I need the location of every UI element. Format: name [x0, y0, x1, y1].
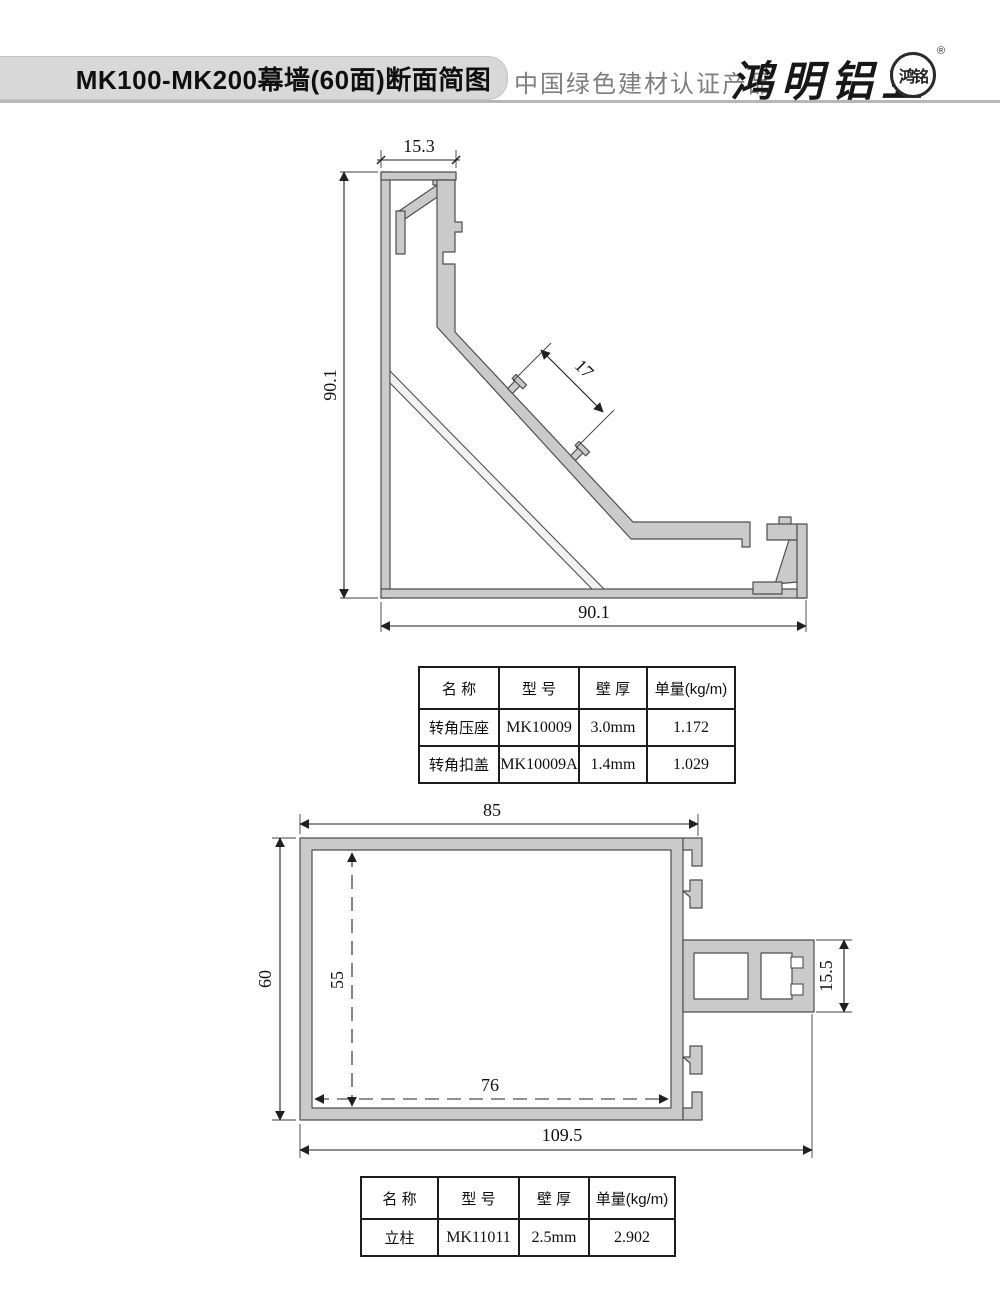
- cell-name: 转角扣盖: [419, 746, 499, 783]
- cell-model: MK10009: [499, 709, 579, 746]
- mullion-tenon: [683, 940, 814, 1012]
- catalog-page: { "header": { "title": "MK100-MK200幕墙(60…: [0, 0, 1000, 1296]
- dim-mullion-width: 85: [300, 800, 698, 836]
- dim-label-corner-height: 90.1: [320, 369, 340, 401]
- mullion-bottom-tab: [683, 1092, 702, 1120]
- dim-corner-width: 90.1: [381, 600, 806, 632]
- corner-strut-foot: [396, 211, 405, 254]
- table-row: 转角压座 MK10009 3.0mm 1.172: [419, 709, 735, 746]
- dim-inner-height: 55: [327, 853, 352, 1106]
- dim-label-tenon-height: 15.5: [816, 960, 836, 992]
- cell-thickness: 1.4mm: [579, 746, 647, 783]
- corner-left-wall: [381, 172, 390, 598]
- dim-label-cap-width: 15.3: [403, 136, 435, 156]
- col-header-thickness: 壁 厚: [519, 1177, 589, 1219]
- dim-label-glass-gap: 17: [571, 355, 598, 382]
- cell-model: MK10009A: [499, 746, 579, 783]
- dim-cap-width: 15.3: [377, 136, 460, 168]
- cell-thickness: 3.0mm: [579, 709, 647, 746]
- corner-end-foot: [753, 582, 782, 594]
- dim-label-mullion-width: 85: [483, 800, 501, 820]
- corner-top-cap: [381, 172, 456, 180]
- mullion-upper-clip: [683, 880, 702, 908]
- col-header-model: 型 号: [438, 1177, 519, 1219]
- table-row: 立柱 MK11011 2.5mm 2.902: [361, 1219, 675, 1256]
- corner-bottom-wall: [381, 589, 806, 598]
- dim-mullion-height: 60: [255, 838, 296, 1120]
- spec-table-mullion: 名 称 型 号 壁 厚 单量(kg/m) 立柱 MK11011 2.5mm 2.…: [360, 1176, 676, 1257]
- col-header-name: 名 称: [419, 667, 499, 709]
- dim-tenon-height: 15.5: [816, 940, 852, 1012]
- col-header-unit-weight: 单量(kg/m): [647, 667, 735, 709]
- dim-overall-width: 109.5: [300, 1014, 812, 1158]
- dim-label-overall-width: 109.5: [542, 1125, 583, 1145]
- dim-label-inner-height: 55: [327, 971, 347, 989]
- dim-label-corner-width: 90.1: [578, 602, 610, 622]
- corner-end-wall: [797, 524, 807, 598]
- cell-unit-weight: 1.029: [647, 746, 735, 783]
- mullion-lower-clip: [683, 1046, 702, 1074]
- cell-thickness: 2.5mm: [519, 1219, 589, 1256]
- col-header-thickness: 壁 厚: [579, 667, 647, 709]
- spec-table-corner: 名 称 型 号 壁 厚 单量(kg/m) 转角压座 MK10009 3.0mm …: [418, 666, 736, 784]
- corner-end-block: [767, 524, 797, 540]
- section-drawings-svg: 15.3 90.1 90.1 17: [0, 0, 1000, 1296]
- tenon-notch: [791, 984, 803, 995]
- corner-profile-drawing: 15.3 90.1 90.1 17: [320, 136, 807, 632]
- cell-name: 立柱: [361, 1219, 438, 1256]
- cell-model: MK11011: [438, 1219, 519, 1256]
- dim-label-inner-width: 76: [481, 1075, 499, 1095]
- dim-inner-width: 76: [315, 1075, 668, 1099]
- corner-hypotenuse-band: [390, 371, 604, 589]
- table-row: 转角扣盖 MK10009A 1.4mm 1.029: [419, 746, 735, 783]
- dim-glass-gap: 17: [513, 343, 614, 448]
- dim-label-mullion-height: 60: [255, 970, 275, 988]
- mullion-top-tab: [683, 838, 702, 866]
- col-header-unit-weight: 单量(kg/m): [589, 1177, 675, 1219]
- col-header-model: 型 号: [499, 667, 579, 709]
- tenon-notch: [791, 957, 803, 968]
- dim-corner-height: 90.1: [320, 172, 378, 598]
- col-header-name: 名 称: [361, 1177, 438, 1219]
- cell-unit-weight: 1.172: [647, 709, 735, 746]
- mullion-drawing: 85 60 55 76 109.5: [255, 800, 852, 1158]
- corner-end-strut: [775, 540, 798, 584]
- cell-unit-weight: 2.902: [589, 1219, 675, 1256]
- cell-name: 转角压座: [419, 709, 499, 746]
